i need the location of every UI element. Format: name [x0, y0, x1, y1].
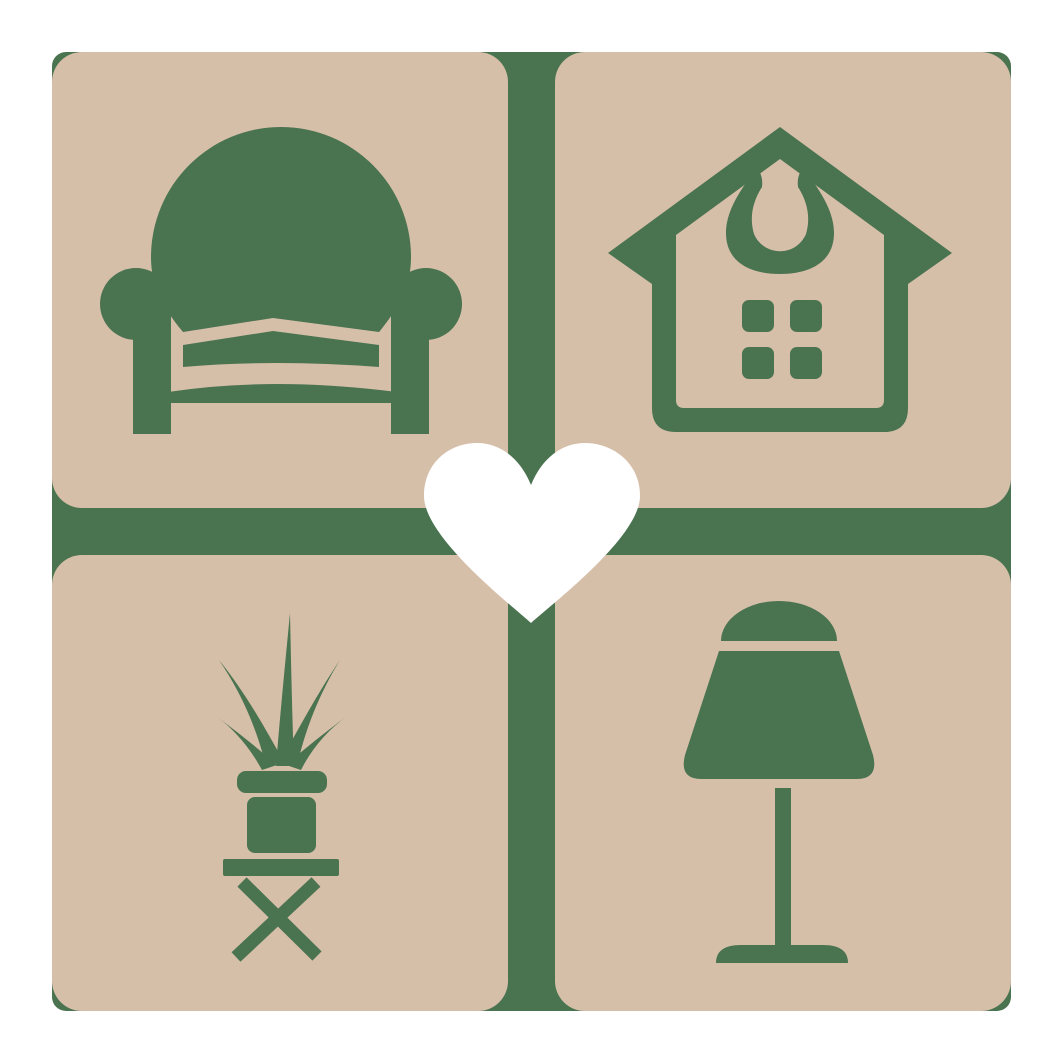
- lamp-base: [716, 945, 848, 963]
- plant-pot-body: [247, 797, 316, 853]
- plant-pot-rim: [237, 771, 327, 793]
- logo-canvas: [0, 0, 1063, 1063]
- armchair-right-leg: [391, 304, 429, 434]
- armchair-left-leg: [133, 304, 171, 434]
- window-pane: [790, 347, 822, 379]
- tile-top-right: [555, 52, 1011, 508]
- stool-top: [223, 859, 339, 876]
- lamp-stem: [775, 788, 791, 950]
- window-pane: [742, 347, 774, 379]
- home-decor-logo: [0, 0, 1063, 1063]
- window-pane: [790, 300, 822, 332]
- window-pane: [742, 300, 774, 332]
